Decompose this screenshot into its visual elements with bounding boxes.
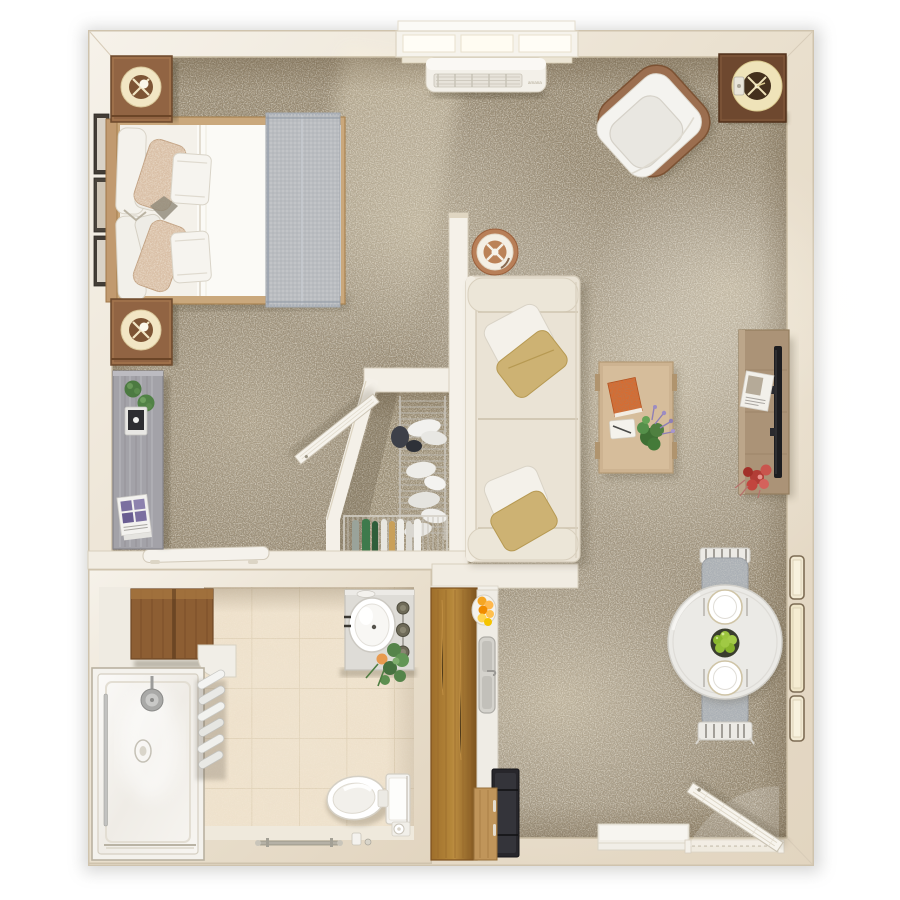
svg-text:amana: amana (528, 80, 542, 85)
